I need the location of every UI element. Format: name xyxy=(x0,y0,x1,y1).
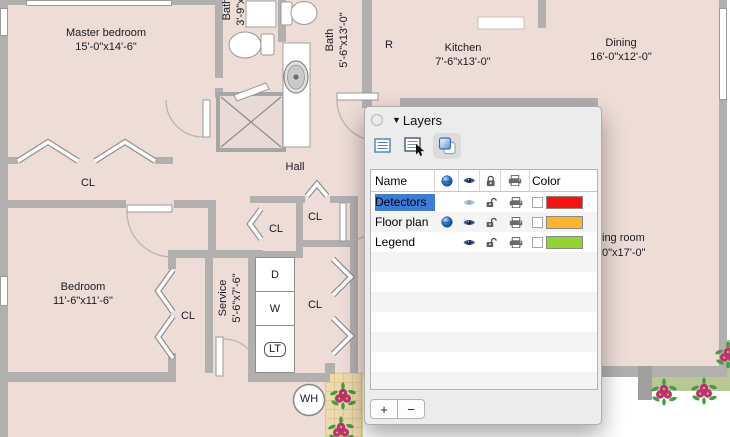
bifold-door xyxy=(18,142,351,358)
layer-name[interactable]: Floor plan xyxy=(375,214,435,231)
print-toggle[interactable] xyxy=(501,232,530,252)
color-column-header: Color xyxy=(530,170,597,191)
color-checkbox[interactable] xyxy=(532,237,543,248)
laundry-appliances: D W LT xyxy=(255,257,295,373)
rose-plant xyxy=(651,378,678,405)
room-label-bath-small: Bath3'-9"x1 xyxy=(217,0,251,44)
panel-title: Layers xyxy=(403,113,442,128)
closet-label: CL xyxy=(73,176,103,190)
lock-column-icon xyxy=(480,170,501,191)
active-layer-toggle[interactable] xyxy=(435,212,459,232)
water-heater-label: WH xyxy=(294,393,324,405)
door xyxy=(127,205,172,257)
add-layer-button[interactable]: + xyxy=(370,399,398,419)
empty-layer-row xyxy=(371,372,597,390)
rose-plant xyxy=(330,382,357,409)
layer-row-detectors[interactable]: Detectors xyxy=(371,192,597,212)
panel-close-button[interactable] xyxy=(371,114,383,126)
empty-layer-row xyxy=(371,312,597,332)
layers-table: Name Color Detectors F xyxy=(370,169,598,390)
active-layer-column-icon xyxy=(435,170,459,191)
closet-label: CL xyxy=(261,222,291,236)
room-label-kitchen: Kitchen7'-6"x13'-0" xyxy=(403,41,523,69)
print-toggle[interactable] xyxy=(501,192,530,212)
layer-row-legend[interactable]: Legend xyxy=(371,232,597,252)
room-label-service: Service5'-6"x7'-6" xyxy=(215,266,245,330)
print-column-icon xyxy=(501,170,530,191)
laundry-tub-box: LT xyxy=(256,326,294,372)
layer-color-swatch[interactable] xyxy=(546,236,583,249)
closet-label: CL xyxy=(300,210,330,224)
empty-layer-row xyxy=(371,252,597,272)
print-toggle[interactable] xyxy=(501,212,530,232)
closet-label: CL xyxy=(300,298,330,312)
room-label-hall: Hall xyxy=(265,160,325,174)
panel-titlebar[interactable]: ▼ Layers xyxy=(365,107,601,131)
dryer-box: D xyxy=(256,258,294,292)
active-layer-toggle[interactable] xyxy=(435,192,459,212)
empty-layer-row xyxy=(371,272,597,292)
lock-toggle[interactable] xyxy=(480,212,501,232)
remove-layer-button[interactable]: − xyxy=(397,399,425,419)
door xyxy=(216,337,260,376)
empty-layer-row xyxy=(371,292,597,312)
layer-row-floor-plan[interactable]: Floor plan xyxy=(371,212,597,232)
disclosure-triangle-icon[interactable]: ▼ xyxy=(392,115,401,125)
visibility-toggle[interactable] xyxy=(459,192,480,212)
layer-color-swatch[interactable] xyxy=(546,216,583,229)
visibility-column-icon xyxy=(459,170,480,191)
lock-toggle[interactable] xyxy=(480,192,501,212)
rose-plant xyxy=(691,377,718,404)
door xyxy=(166,100,210,137)
rose-plant xyxy=(328,416,355,437)
list-view-button[interactable] xyxy=(369,133,397,159)
layer-name[interactable]: Detectors xyxy=(375,194,435,211)
sink-fixture xyxy=(283,61,308,93)
list-view-icon xyxy=(373,136,393,156)
shower-fixture xyxy=(218,94,284,150)
list-view-edit-icon xyxy=(404,136,426,156)
layers-view-icon xyxy=(437,136,458,156)
room-label-living-room-partial: ing room 0"x17'-0" xyxy=(602,231,646,261)
empty-layer-row xyxy=(371,332,597,352)
layers-view-button[interactable] xyxy=(433,133,461,159)
closet-label: CL xyxy=(173,309,203,323)
layers-panel: ▼ Layers xyxy=(364,106,602,425)
rose-plant xyxy=(715,341,730,368)
room-label-bedroom: Bedroom11'-6"x11'-6" xyxy=(13,280,153,308)
floor-plan-canvas[interactable]: D W LT Master bedroom15'-0"x14'-6" Bath3… xyxy=(0,0,730,437)
active-layer-toggle[interactable] xyxy=(435,232,459,252)
layers-table-header: Name Color xyxy=(371,170,597,192)
layer-name[interactable]: Legend xyxy=(375,234,435,251)
room-label-master-bedroom: Master bedroom15'-0"x14'-6" xyxy=(36,26,176,54)
room-label-bath-main: Bath5'-6"x13'-0" xyxy=(321,2,353,78)
room-label-dining: Dining16'-0"x12'-0" xyxy=(561,36,681,64)
layer-color-swatch[interactable] xyxy=(546,196,583,209)
visibility-toggle[interactable] xyxy=(459,212,480,232)
kitchen-counter xyxy=(478,17,524,29)
visibility-toggle[interactable] xyxy=(459,232,480,252)
refrigerator-label: R xyxy=(382,38,396,52)
color-checkbox[interactable] xyxy=(532,217,543,228)
toilet-fixture xyxy=(281,2,317,26)
color-checkbox[interactable] xyxy=(532,197,543,208)
lock-toggle[interactable] xyxy=(480,232,501,252)
empty-layer-row xyxy=(371,352,597,372)
washer-box: W xyxy=(256,292,294,326)
list-view-edit-button[interactable] xyxy=(401,133,429,159)
name-column-header: Name xyxy=(371,170,435,191)
layers-toolbar xyxy=(365,131,601,161)
